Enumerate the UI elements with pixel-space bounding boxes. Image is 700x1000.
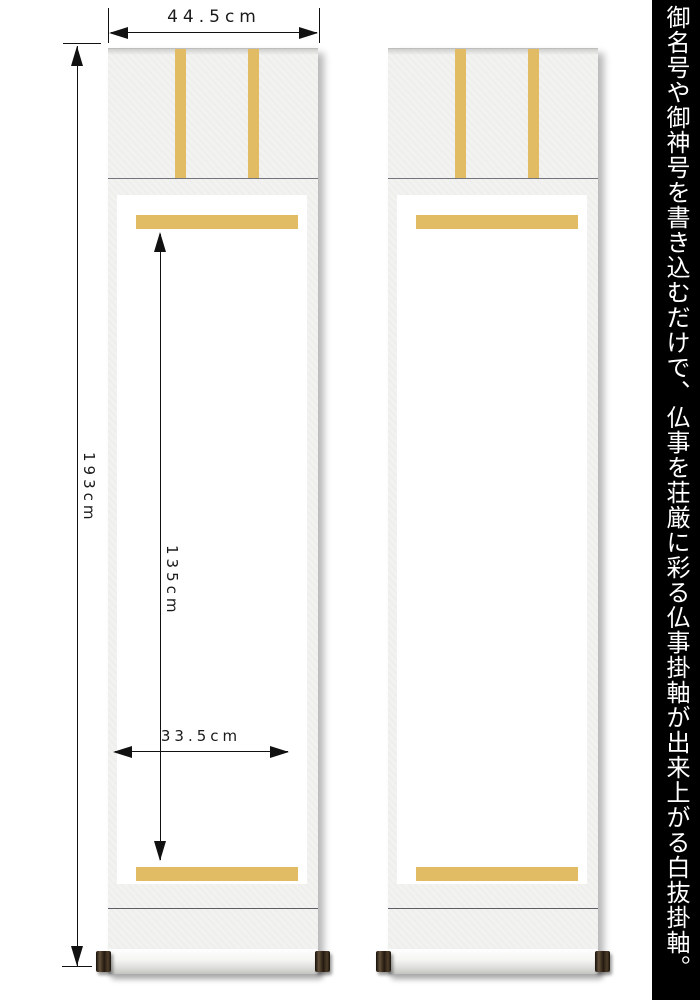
ichimonji-strip-top xyxy=(136,215,298,229)
dim-inner-height-label: 135cm xyxy=(163,545,181,617)
honshi-paper xyxy=(397,195,587,884)
ichimonji-strip-bottom xyxy=(136,867,298,881)
arrowhead-right-icon xyxy=(270,746,289,758)
dim-total-width-label: 44.5cm xyxy=(108,7,320,27)
product-image: 44.5cm 193cm 135cm 33.5cm 御名号や御神号を書き込むだけ… xyxy=(0,0,700,1000)
lower-mount-line xyxy=(388,908,598,909)
futai-ribbon-right xyxy=(248,49,259,178)
arrowhead-up-icon xyxy=(154,232,166,252)
roller-knob-right xyxy=(595,951,610,972)
lower-mount-line xyxy=(108,908,318,909)
dim-inner-width-label: 33.5cm xyxy=(113,727,289,745)
dimension-line xyxy=(111,32,317,33)
roller-knob-right xyxy=(315,951,330,972)
arrowhead-left-icon xyxy=(113,746,132,758)
arrowhead-up-icon xyxy=(71,46,83,66)
roller-knob-left xyxy=(96,951,111,972)
dimension-line xyxy=(160,234,161,860)
caption-strip: 御名号や御神号を書き込むだけで、仏事を荘厳に彩る仏事掛軸が出来上がる白抜掛軸。 xyxy=(652,0,700,1000)
ichimonji-strip-top xyxy=(416,215,578,229)
arrowhead-down-icon xyxy=(154,841,166,861)
arrowhead-right-icon xyxy=(299,27,318,39)
futai-ribbon-left xyxy=(175,49,186,178)
roller-knob-left xyxy=(376,951,391,972)
kakejiku-scroll-1 xyxy=(108,48,318,952)
dim-total-height-label: 193cm xyxy=(80,452,98,524)
arrowhead-left-icon xyxy=(109,27,128,39)
caption-text: 御名号や御神号を書き込むだけで、仏事を荘厳に彩る仏事掛軸が出来上がる白抜掛軸。 xyxy=(652,0,700,1000)
roller-rod xyxy=(106,949,320,974)
kakejiku-scroll-2 xyxy=(388,48,598,952)
futai-ribbon-right xyxy=(528,49,539,178)
honshi-paper xyxy=(117,195,307,884)
ichimonji-strip-bottom xyxy=(416,867,578,881)
extension-tick xyxy=(63,43,101,44)
mount-divider-line xyxy=(388,178,598,179)
roller-rod xyxy=(386,949,600,974)
dimension-line xyxy=(77,46,78,967)
dimension-line xyxy=(115,751,288,752)
mount-divider-line xyxy=(108,178,318,179)
arrowhead-down-icon xyxy=(71,946,83,966)
futai-ribbon-left xyxy=(455,49,466,178)
